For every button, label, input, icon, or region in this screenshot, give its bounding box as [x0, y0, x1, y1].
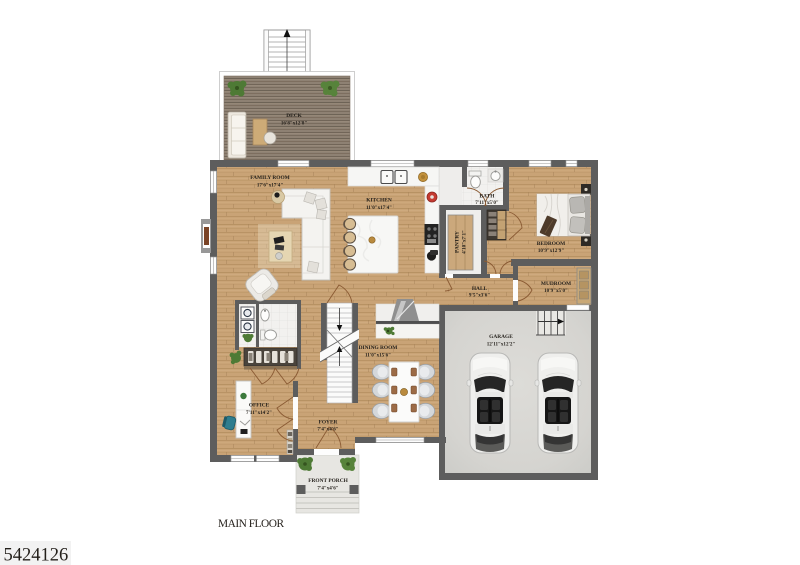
svg-text:7'4"x4'6": 7'4"x4'6" — [317, 486, 338, 492]
svg-text:7'11"x5'0": 7'11"x5'0" — [475, 200, 499, 206]
svg-text:7'4"x4'6": 7'4"x4'6" — [317, 427, 338, 433]
svg-text:10'9"x12'9": 10'9"x12'9" — [538, 248, 564, 254]
svg-text:KITCHEN: KITCHEN — [366, 198, 392, 204]
svg-text:17'6"x17'4": 17'6"x17'4" — [257, 183, 283, 189]
svg-text:16'8"x12'8": 16'8"x12'8" — [281, 121, 307, 127]
svg-text:9'5"x3'6": 9'5"x3'6" — [469, 293, 490, 299]
svg-text:12'11"x12'2": 12'11"x12'2" — [487, 342, 516, 348]
svg-text:OFFICE: OFFICE — [249, 403, 270, 409]
svg-text:DINING ROOM: DINING ROOM — [359, 345, 398, 351]
svg-text:FOYER: FOYER — [319, 420, 338, 426]
svg-text:HALL: HALL — [472, 286, 488, 292]
svg-text:BATH: BATH — [480, 194, 496, 200]
svg-text:BEDROOM: BEDROOM — [537, 241, 565, 247]
svg-text:7'11"x14'2": 7'11"x14'2" — [246, 410, 272, 416]
svg-text:11'0"x15'6": 11'0"x15'6" — [365, 353, 391, 359]
svg-text:FRONT PORCH: FRONT PORCH — [308, 478, 348, 484]
svg-text:FAMILY ROOM: FAMILY ROOM — [250, 175, 289, 181]
svg-text:4'10"x7'1": 4'10"x7'1" — [462, 230, 468, 254]
svg-text:MUDROOM: MUDROOM — [541, 281, 571, 287]
svg-text:10'9"x5'0": 10'9"x5'0" — [544, 288, 568, 294]
svg-text:MAIN FLOOR: MAIN FLOOR — [218, 518, 284, 530]
svg-text:5424126: 5424126 — [4, 546, 69, 565]
svg-text:GARAGE: GARAGE — [489, 334, 513, 340]
svg-text:DECK: DECK — [286, 113, 302, 119]
svg-text:PANTRY: PANTRY — [455, 231, 461, 253]
svg-text:11'0"x17'4": 11'0"x17'4" — [366, 205, 392, 211]
